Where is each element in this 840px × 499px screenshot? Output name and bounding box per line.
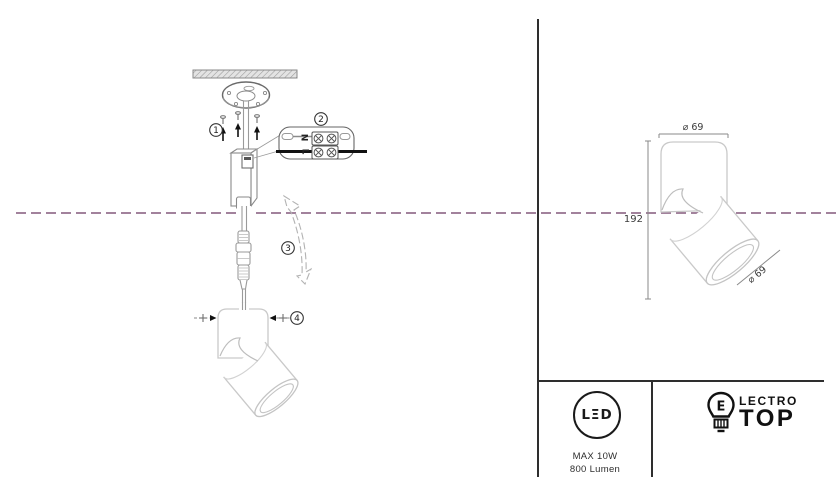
mounting-rod	[244, 101, 249, 153]
wire-lug	[340, 134, 350, 140]
power-cable-connector	[236, 206, 251, 311]
step-4-label: 4	[294, 314, 300, 324]
top-diameter-label: ⌀ 69	[683, 122, 704, 133]
spec-box-top-border	[537, 380, 824, 382]
brand-name-bottom: TOP	[739, 408, 798, 430]
wire-lug	[282, 134, 293, 140]
arrow-right-icon	[210, 315, 217, 321]
step-3-label: 3	[285, 244, 291, 254]
panel-divider	[537, 19, 539, 477]
head-diameter-label: ⌀ 69	[746, 264, 769, 286]
arrow-left-icon	[270, 315, 277, 321]
instruction-sheet: 1	[0, 0, 840, 499]
ceiling-bar	[193, 70, 297, 78]
dimension-drawing: ⌀ 69 192 ⌀ 69	[624, 122, 780, 299]
step-1-label: 1	[213, 126, 219, 136]
step-2-label: 2	[318, 115, 324, 125]
bulb-icon: E	[705, 391, 737, 439]
ceiling-canopy	[223, 82, 270, 108]
height-dimension	[645, 141, 651, 299]
terminal-neutral-label: N	[299, 134, 309, 142]
leader-lines	[254, 134, 282, 158]
bulb-letter: E	[717, 400, 726, 415]
terminal-block-detail: N L 2	[276, 113, 367, 159]
screw-icon	[279, 314, 287, 322]
max-power-label: MAX 10W	[545, 451, 645, 462]
height-label: 192	[624, 214, 643, 225]
terminal-live-label: L	[300, 149, 310, 155]
top-diameter-dimension	[659, 134, 728, 138]
brand-logo: E LECTRO TOP	[705, 391, 798, 439]
brand-name: LECTRO TOP	[739, 395, 798, 430]
driver-housing	[231, 149, 257, 209]
rotation-arrow: 3	[282, 196, 311, 284]
screw-icon	[199, 314, 207, 322]
led-badge: LΞD	[573, 391, 621, 439]
luminous-flux-label: 800 Lumen	[545, 464, 645, 475]
step-1-screws: 1	[210, 112, 260, 141]
arrow-up-icon	[220, 123, 260, 141]
led-logo-text: LΞD	[581, 407, 612, 423]
spec-box-divider	[651, 380, 653, 477]
screw-icon	[221, 112, 260, 124]
installation-diagram: 1	[193, 70, 367, 422]
